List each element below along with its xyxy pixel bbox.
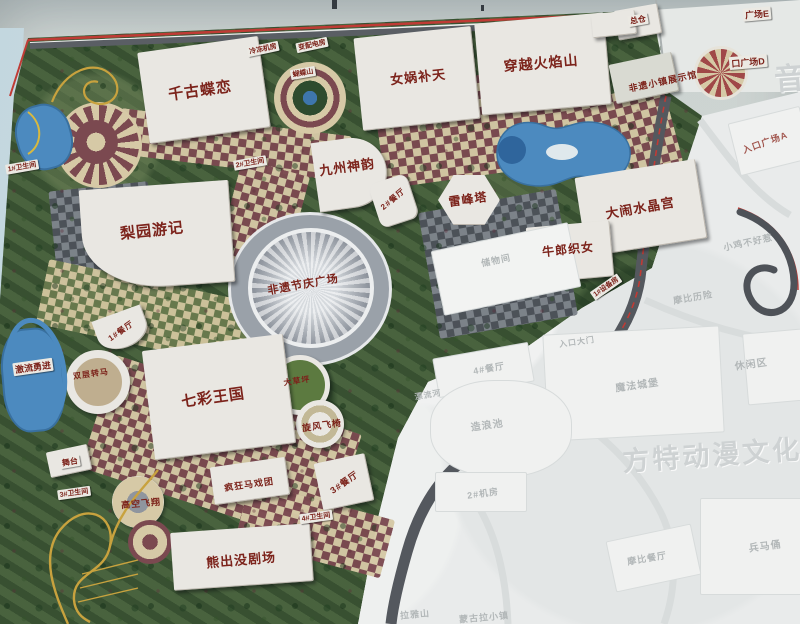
label-plaza-e: 广场E xyxy=(742,6,771,21)
label-mountain: 拉雅山 xyxy=(399,606,430,622)
water-slide xyxy=(28,112,39,154)
roller-coaster-northwest xyxy=(52,68,117,104)
corner-watermark: 音 xyxy=(773,53,800,99)
park-map-photo: 千古蝶恋 女娲补天 穿越火焰山 总仓 九州神韵 2#餐厅 雷峰塔 梨园游记 大闹… xyxy=(0,0,800,624)
entrance-loop-road xyxy=(740,212,794,313)
